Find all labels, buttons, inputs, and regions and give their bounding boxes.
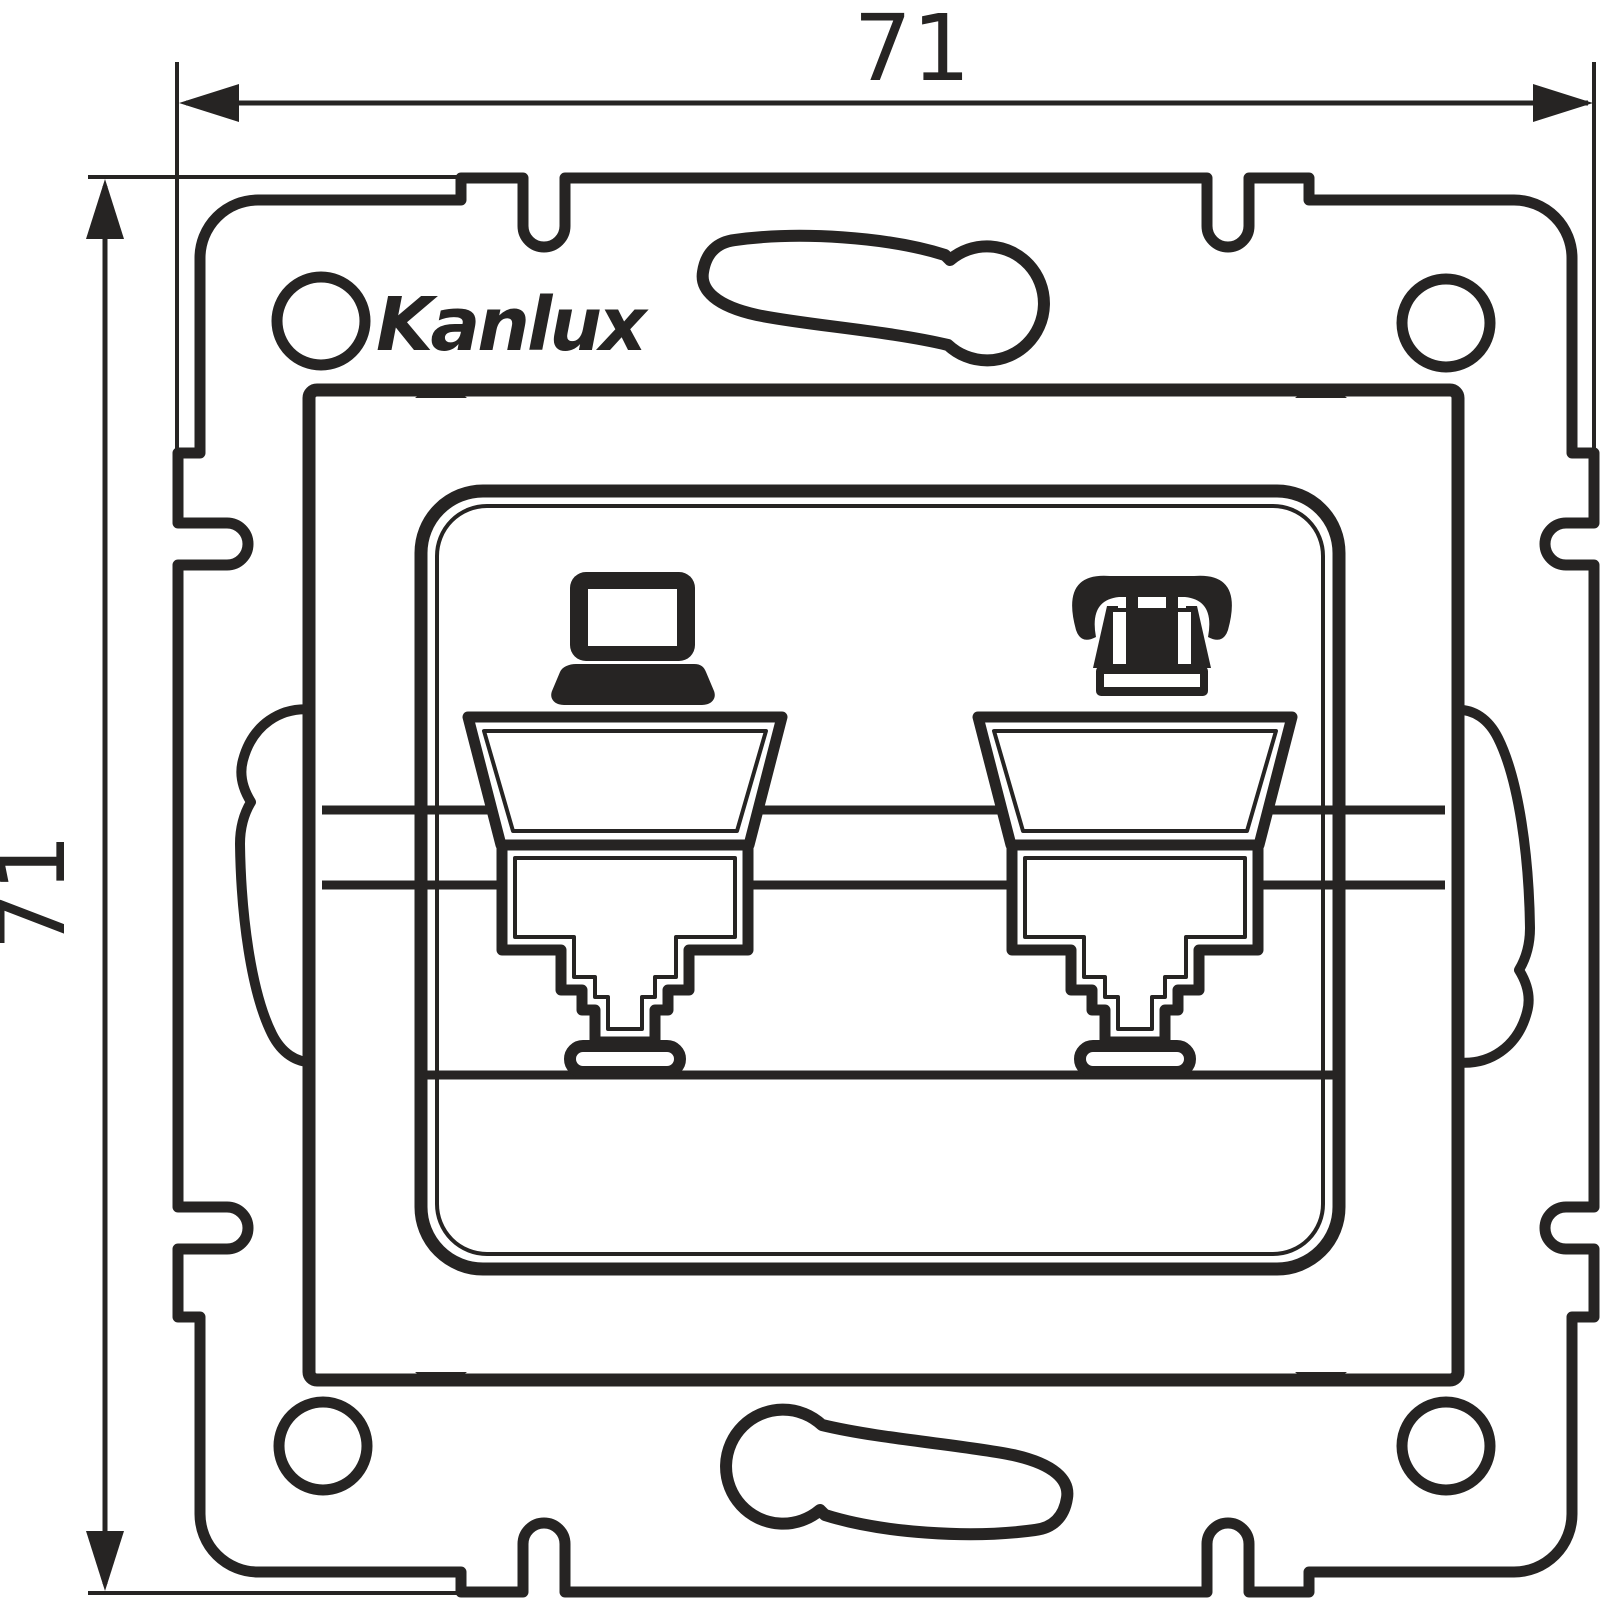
- screw-hole-bottom-left: [279, 1402, 367, 1490]
- dimension-drawing: Kanlux 71: [0, 0, 1600, 1600]
- computer-port-icon: [551, 572, 715, 705]
- width-dimension-label: 71: [853, 0, 970, 102]
- kanlux-logo: Kanlux: [376, 282, 649, 368]
- screw-hole-top-left: [277, 277, 365, 365]
- screw-hole-top-right: [1402, 279, 1490, 367]
- height-dimension-label: 71: [0, 833, 86, 950]
- technical-drawing-page: Kanlux 71: [0, 0, 1600, 1600]
- screw-hole-bottom-right: [1402, 1402, 1490, 1490]
